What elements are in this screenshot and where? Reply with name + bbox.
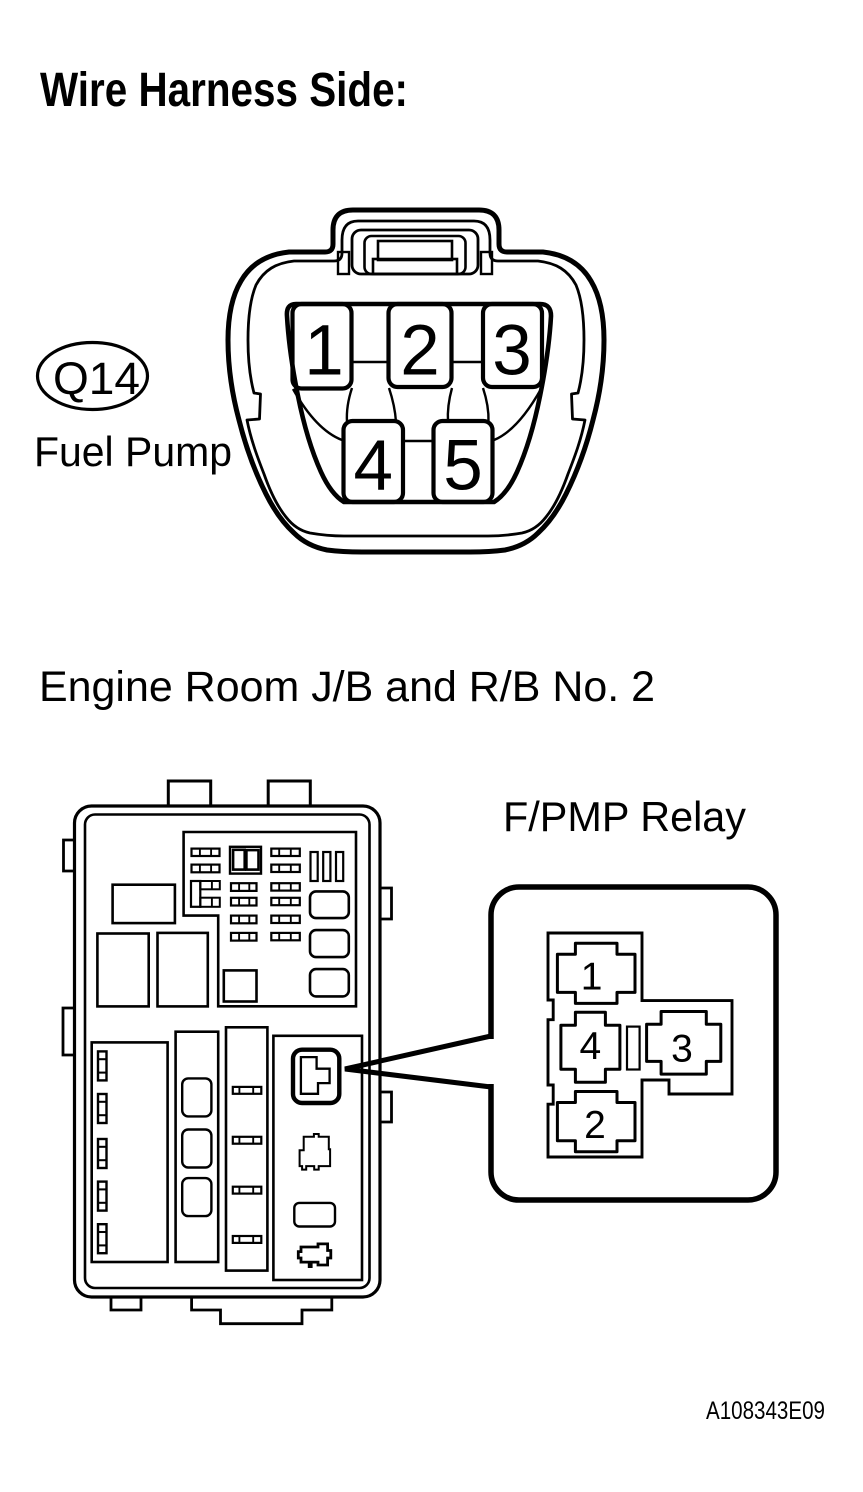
svg-text:3: 3	[492, 312, 532, 391]
svg-text:5: 5	[443, 427, 483, 506]
svg-text:1: 1	[581, 956, 603, 999]
svg-text:4: 4	[580, 1025, 602, 1068]
svg-text:4: 4	[354, 427, 394, 506]
svg-text:A108343E09: A108343E09	[706, 1397, 825, 1425]
svg-text:2: 2	[400, 312, 440, 391]
svg-text:3: 3	[671, 1027, 693, 1070]
svg-text:Wire Harness Side:: Wire Harness Side:	[40, 64, 408, 117]
svg-text:Fuel Pump: Fuel Pump	[34, 428, 232, 475]
svg-text:F/PMP Relay: F/PMP Relay	[503, 793, 746, 840]
svg-text:1: 1	[304, 312, 344, 391]
svg-text:Engine Room J/B and R/B No. 2: Engine Room J/B and R/B No. 2	[39, 664, 655, 711]
svg-text:2: 2	[584, 1104, 606, 1147]
svg-text:Q14: Q14	[53, 353, 140, 404]
